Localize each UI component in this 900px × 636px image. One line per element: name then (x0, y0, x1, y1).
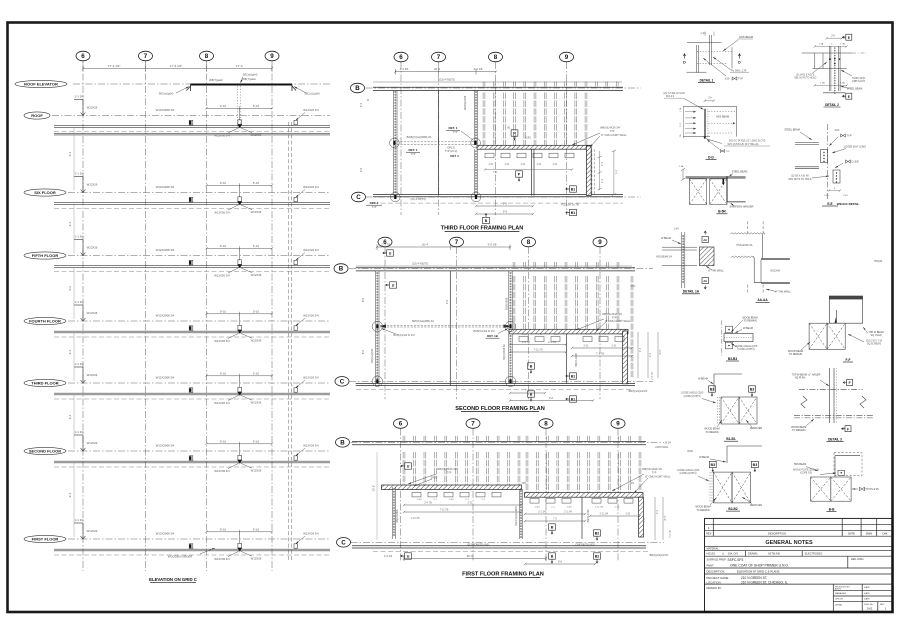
svg-text:B2(X)w(2)06: B2(X)w(2)06 (371, 348, 374, 363)
svg-text:W BEAM: W BEAM (699, 456, 709, 459)
svg-text:DRAWN:: DRAWN: (748, 552, 758, 555)
svg-text:F: F (849, 381, 851, 385)
svg-text:WOODEN GIRDER: WOODEN GIRDER (168, 555, 193, 559)
svg-text:38Cx(t)g/h0: 38Cx(t)g/h0 (159, 92, 174, 96)
svg-text:2'-11: 2'-11 (489, 164, 495, 166)
svg-text:5'-10: 5'-10 (253, 371, 260, 375)
svg-text:B25(X)L3/4`D 1/3: B25(X)L3/4`D 1/3 (394, 333, 415, 337)
svg-text:C: C (341, 540, 346, 547)
svg-text:TYP: TYP (725, 151, 730, 153)
svg-text:FIRST FLOOR: FIRST FLOOR (32, 536, 59, 541)
svg-text:7'-11: 7'-11 (493, 172, 499, 174)
svg-text:ANGLE PLATE (2)X5+3A: ANGLE PLATE (2)X5+3A (793, 469, 819, 472)
svg-text:2'-4: 2'-4 (649, 352, 652, 357)
svg-text:1 3A: 1 3A (840, 82, 845, 85)
svg-text:DET. 1: DET. 1 (448, 126, 457, 130)
svg-text:C: C (340, 379, 345, 386)
svg-text:5'-10: 5'-10 (253, 439, 260, 443)
svg-text:W12X26 3/4: W12X26 3/4 (303, 108, 319, 112)
svg-text:1'-1 3/4: 1'-1 3/4 (74, 518, 84, 522)
svg-text:2'-11 3/4: 2'-11 3/4 (600, 514, 609, 516)
svg-text:STEEL BEAM: STEEL BEAM (784, 128, 800, 131)
svg-text:7'-1 7/8: 7'-1 7/8 (596, 353, 605, 356)
svg-text:SIX FLOOR: SIX FLOOR (34, 190, 56, 195)
svg-text:B: B (355, 85, 360, 92)
svg-text:W12X2068 3/4: W12X2068 3/4 (156, 248, 175, 252)
svg-text:DWG No.: DWG No. (864, 604, 874, 606)
svg-text:CP1: CP1 (630, 482, 635, 485)
svg-text:(3J) 4"X6(75): (3J) 4"X6(75) (439, 77, 455, 81)
svg-text:B2: B2 (595, 554, 600, 558)
svg-text:W12X36 3/4: W12X36 3/4 (214, 557, 230, 561)
svg-text:DET 4: DET 4 (450, 154, 459, 158)
svg-text:THIRD FLOOR FRAMING PLAN: THIRD FLOOR FRAMING PLAN (441, 226, 524, 232)
svg-text:(2) 1/2 B X 7 3A: (2) 1/2 B X 7 3A (866, 339, 883, 342)
svg-text:7'-2: 7'-2 (525, 390, 530, 393)
svg-text:W12X2068 3/4: W12X2068 3/4 (156, 376, 175, 380)
svg-text:20'-4": 20'-4" (467, 554, 474, 558)
svg-text:DETAIL 1: DETAIL 1 (700, 78, 714, 82)
svg-text:3'-0 1/8: 3'-0 1/8 (474, 67, 483, 71)
svg-text:H88(0B: H88(0B (874, 260, 883, 263)
svg-text:1 3/4: 1 3/4 (843, 195, 849, 197)
svg-text:HSS12X06 3A: HSS12X06 3A (736, 244, 752, 247)
svg-text:B25(X)L3/4`D 1/3: B25(X)L3/4`D 1/3 (474, 329, 495, 333)
svg-text:B2(X)2036 3A: B2(X)2036 3A (503, 344, 506, 360)
svg-text:B3: B3 (750, 387, 755, 391)
svg-text:C: C (356, 194, 361, 201)
svg-text:MANAGER: MANAGER (835, 592, 846, 595)
svg-text:W12X2068 3/4: W12X2068 3/4 (156, 532, 175, 536)
svg-text:7: 7 (437, 54, 441, 61)
svg-text:2'-1 3/4: 2'-1 3/4 (538, 512, 546, 514)
svg-text:2'-4: 2'-4 (639, 347, 642, 352)
svg-text:9: 9 (270, 53, 274, 60)
svg-text:TO REMAIN: TO REMAIN (792, 429, 806, 432)
svg-text:REMOVED: REMOVED (750, 504, 762, 507)
svg-text:8'-6: 8'-6 (361, 297, 365, 302)
svg-text:2'-11: 2'-11 (468, 503, 474, 505)
svg-text:SAMPSON HANGER: SAMPSON HANGER (730, 205, 754, 208)
svg-text:ARCH: ARCH (835, 588, 841, 591)
svg-text:B2-B2: B2-B2 (728, 507, 737, 511)
svg-text:AA-AA: AA-AA (757, 298, 768, 302)
svg-text:W12X36 3/4: W12X36 3/4 (214, 133, 230, 137)
svg-text:1'-1 3/4: 1'-1 3/4 (74, 172, 84, 176)
svg-text:W12X26 3/4: W12X26 3/4 (303, 185, 319, 189)
svg-text:8'-4": 8'-4" (659, 349, 662, 354)
svg-text:2'-1 3/4: 2'-1 3/4 (564, 512, 572, 514)
svg-text:DATE: DATE (864, 586, 870, 589)
svg-text:(COPE (2)X5T4): (COPE (2)X5T4) (738, 349, 755, 351)
svg-text:W12X26: W12X26 (87, 441, 98, 445)
svg-text:B1: B1 (571, 187, 576, 191)
svg-text:TYP: TYP (447, 472, 452, 475)
svg-text:STEEL BEAM: STEEL BEAM (732, 171, 748, 174)
svg-text:1-3/4: 1-3/4 (554, 334, 560, 336)
svg-text:W12X26: W12X26 (251, 400, 262, 404)
svg-text:2'A: 2'A (708, 97, 712, 100)
svg-text:W12X26: W12X26 (251, 210, 262, 214)
svg-text:W12X2068 3/4: W12X2068 3/4 (156, 185, 175, 189)
svg-text:B2: B2 (595, 531, 600, 535)
svg-text:1-3/4: 1-3/4 (535, 507, 541, 509)
svg-text:B2(5)(X)va(2068) 3A: B2(5)(X)va(2068) 3A (407, 135, 432, 139)
svg-text:TYP: TYP (411, 153, 416, 156)
svg-text:1-3/4: 1-3/4 (417, 499, 423, 501)
svg-text:F-F: F-F (846, 358, 851, 362)
svg-text:B8(X)L4X26: B8(X)L4X26 (587, 509, 590, 523)
svg-text:3/16: 3/16 (835, 129, 840, 132)
svg-text:E-E: E-E (827, 202, 832, 206)
svg-text:9'-6: 9'-6 (68, 414, 72, 419)
svg-text:LOOSE 3A 8" LONG: LOOSE 3A 8" LONG (844, 146, 866, 149)
svg-text:E: E (848, 95, 850, 99)
svg-text:2'-11: 2'-11 (521, 164, 527, 166)
svg-text:8: 8 (527, 239, 531, 246)
svg-text:2'-11: 2'-11 (611, 345, 617, 348)
svg-text:W12X26: W12X26 (251, 133, 262, 137)
svg-text:ONE COAT OF SHOP PRIMER U.N.O.: ONE COAT OF SHOP PRIMER U.N.O. (730, 564, 789, 568)
svg-text:W BEAM: W BEAM (698, 377, 708, 380)
svg-text:5'-10: 5'-10 (253, 181, 260, 185)
svg-text:W12X26: W12X26 (251, 273, 262, 277)
svg-text:20'-4: 20'-4 (422, 243, 428, 247)
svg-text:W12X36 3/4: W12X36 3/4 (214, 339, 230, 343)
svg-text:7'-11 7/8: 7'-11 7/8 (533, 349, 543, 352)
svg-text:B8(2)(1/4)L3/4`D: B8(2)(1/4)L3/4`D (650, 554, 669, 557)
svg-text:TYP: TYP (738, 77, 743, 81)
svg-text:TO REMAIN: TO REMAIN (743, 320, 757, 323)
svg-text:(3(J)-4"X6(75) (A3): (3(J)-4"X6(75) (A3) (467, 543, 489, 547)
svg-text:LOCATION: LOCATION (707, 580, 721, 584)
svg-text:(COPE 0'S): (COPE 0'S) (800, 473, 812, 475)
svg-text:1-3/4: 1-3/4 (522, 334, 528, 336)
svg-text:U: U (407, 554, 410, 558)
svg-text:W12X26: W12X26 (87, 373, 98, 377)
svg-text:TO REMAIN: TO REMAIN (705, 431, 719, 434)
svg-text:(3J) 4"X6(75): (3J) 4"X6(75) (410, 197, 425, 201)
svg-text:DESCRIPTION: DESCRIPTION (768, 531, 786, 535)
svg-text:2'-11: 2'-11 (626, 514, 632, 516)
svg-text:STEEL BEAM: STEEL BEAM (847, 88, 863, 91)
svg-text:7'-4: 7'-4 (643, 517, 646, 522)
svg-text:TYP NS & FS: TYP NS & FS (864, 488, 879, 491)
svg-text:...M 3/4: ...M 3/4 (663, 443, 671, 445)
svg-text:DETAIL: DETAIL (835, 603, 843, 606)
svg-text:1'-1 3/4: 1'-1 3/4 (74, 95, 84, 99)
svg-text:8" CMU ACMT WALL: 8" CMU ACMT WALL (601, 133, 627, 137)
svg-text:210 N GREEN ST, CHICAGO, IL: 210 N GREEN ST, CHICAGO, IL (741, 580, 788, 584)
svg-text:DET. 1B: DET. 1B (487, 334, 498, 338)
svg-text:U: U (392, 283, 395, 287)
svg-text:TYP: TYP (453, 131, 458, 134)
svg-text:7: 7 (144, 53, 148, 60)
svg-text:7'-11 7/8: 7'-11 7/8 (440, 510, 449, 512)
svg-text:3/16: 3/16 (725, 78, 730, 81)
svg-text:THIRD FLOOR: THIRD FLOOR (31, 380, 58, 385)
svg-text:B: B (339, 266, 344, 273)
svg-text:B1-B1: B1-B1 (726, 437, 735, 441)
svg-text:FOURTH FLOOR: FOURTH FLOOR (29, 318, 61, 323)
svg-text:ELEVATION AT GRID C & PLANS: ELEVATION AT GRID C & PLANS (737, 570, 780, 574)
svg-text:(3)4"X6(75) (A3): (3)4"X6(75) (A3) (576, 543, 595, 547)
svg-text:8" CMU ACMT WALL: 8" CMU ACMT WALL (605, 319, 631, 323)
svg-text:W12X26: W12X26 (87, 183, 98, 187)
svg-text:9'-6: 9'-6 (68, 492, 72, 497)
svg-text:DBL NUTS TO HOLD: DBL NUTS TO HOLD (789, 178, 812, 181)
svg-text:1 3A: 1 3A (679, 107, 682, 112)
svg-text:2'-11: 2'-11 (537, 164, 543, 166)
svg-text:2'-11: 2'-11 (505, 164, 511, 166)
svg-text:B1: B1 (571, 374, 576, 378)
svg-text:8" THK WALL: 8" THK WALL (708, 269, 724, 272)
svg-text:38Cx(t)g/h0: 38Cx(t)g/h0 (243, 72, 258, 76)
svg-text:W8(T)pack: W8(T)pack (209, 78, 223, 82)
svg-text:W12X36 3/4: W12X36 3/4 (214, 469, 230, 473)
svg-text:W/O (2) 5/8 A.B. W 2" BIG+3A: W/O (2) 5/8 A.B. W 2" BIG+3A (727, 143, 758, 146)
svg-text:5'-10: 5'-10 (253, 309, 260, 313)
svg-text:17'-4: 17'-4 (236, 64, 243, 68)
svg-text:W12X26: W12X26 (87, 529, 98, 533)
svg-text:DETAIL 2: DETAIL 2 (825, 103, 839, 107)
svg-text:1'-2 3/4: 1'-2 3/4 (400, 67, 409, 71)
svg-text:SECOND FLOOR FRAMING PLAN: SECOND FLOOR FRAMING PLAN (455, 406, 545, 412)
svg-text:17'-4 1/4": 17'-4 1/4" (170, 64, 183, 68)
svg-text:B3-B3: B3-B3 (728, 357, 737, 361)
svg-text:SURFACE PREP:: SURFACE PREP: (707, 558, 727, 561)
svg-text:W BEAM: W BEAM (743, 327, 753, 330)
svg-text:TYP: TYP (372, 206, 377, 209)
svg-text:CHK: CHK (882, 531, 888, 535)
svg-text:HSS BEAM: HSS BEAM (739, 35, 754, 39)
svg-text:2'-1 3/4: 2'-1 3/4 (548, 341, 557, 344)
svg-text:6: 6 (399, 54, 403, 61)
svg-text:TYP (LN.2): TYP (LN.2) (445, 150, 458, 153)
svg-text:AA: AA (703, 238, 707, 242)
svg-text:DATE: DATE (848, 531, 855, 535)
svg-text:1'-1 3/4: 1'-1 3/4 (74, 362, 84, 366)
svg-text:LOOSE ANGLE (2)X5: LOOSE ANGLE (2)X5 (677, 469, 700, 472)
svg-text:W12X06: W12X06 (770, 270, 780, 273)
svg-text:1-3/4: 1-3/4 (449, 499, 455, 501)
svg-text:1 3/4: 1 3/4 (824, 195, 830, 197)
svg-text:S-01: S-01 (867, 606, 873, 610)
svg-text:TYP: TYP (652, 472, 657, 475)
svg-text:B: B (485, 219, 488, 223)
svg-text:9'-0: 9'-0 (549, 397, 554, 400)
svg-text:W12X2068 3/4: W12X2068 3/4 (156, 444, 175, 448)
svg-text:2'-4: 2'-4 (601, 178, 604, 183)
svg-text:1'-3 3/4: 1'-3 3/4 (384, 555, 393, 558)
svg-text:(3J) 4"X6(75): (3J) 4"X6(75) (412, 262, 428, 266)
svg-text:8: 8 (494, 54, 498, 61)
svg-text:8'-6: 8'-6 (361, 349, 365, 354)
svg-text:GENERAL NOTES: GENERAL NOTES (765, 540, 813, 546)
svg-text:B: B (530, 364, 533, 368)
svg-text:ELECTRODES:: ELECTRODES: (805, 552, 823, 555)
svg-text:7'-3 7/8: 7'-3 7/8 (652, 371, 654, 379)
svg-text:REMOVED: REMOVED (750, 427, 762, 430)
svg-text:8: 8 (205, 53, 209, 60)
svg-text:(COPE (2)X5T4): (COPE (2)X5T4) (684, 396, 701, 398)
svg-text:W/A 2.2: W/A 2.2 (666, 95, 675, 98)
svg-text:W12X26 3/4: W12X26 3/4 (303, 444, 319, 448)
svg-text:ELEVATION ON GRID C: ELEVATION ON GRID C (149, 577, 197, 582)
svg-text:HSS BEAM: HSS BEAM (716, 116, 729, 119)
svg-text:ROOF: ROOF (31, 113, 43, 118)
svg-text:9'-6: 9'-6 (503, 210, 508, 214)
svg-text:DWN: DWN (866, 531, 872, 535)
svg-text:5'-10: 5'-10 (253, 527, 260, 531)
svg-text:W8(X)L4X26 3/4: W8(X)L4X26 3/4 (642, 467, 662, 471)
svg-text:B1: B1 (571, 211, 576, 215)
svg-text:B8(X)X26/B: B8(X)X26/B (396, 509, 399, 523)
svg-text:1'-1 3/4: 1'-1 3/4 (74, 300, 84, 304)
svg-text:2'-4: 2'-4 (601, 161, 604, 166)
svg-text:20'-4: 20'-4 (434, 67, 440, 71)
svg-text:9'-6: 9'-6 (68, 151, 72, 156)
svg-text:9'-6: 9'-6 (68, 221, 72, 226)
svg-text:2'-11: 2'-11 (615, 507, 620, 509)
svg-text:FIFTH FLOOR: FIFTH FLOOR (32, 253, 59, 258)
svg-text:1 3/4: 1 3/4 (673, 229, 679, 231)
svg-text:W12X2068 3/4: W12X2068 3/4 (156, 314, 175, 318)
svg-text:8: 8 (544, 421, 548, 428)
svg-text:W12X26: W12X26 (87, 311, 98, 315)
svg-text:B-5R: B-5R (718, 210, 726, 214)
svg-text:2'-11 3/4: 2'-11 3/4 (595, 507, 604, 509)
svg-text:8'-0: 8'-0 (558, 561, 563, 564)
svg-text:PAINT:: PAINT: (707, 564, 715, 567)
svg-text:7'-4": 7'-4" (616, 169, 619, 174)
svg-text:2'-11: 2'-11 (553, 164, 559, 166)
svg-text:AA: AA (703, 279, 707, 283)
svg-text:3C2D: 3C2D (687, 451, 693, 453)
svg-text:(2) 3/4`D X.A.B. &: (2) 3/4`D X.A.B. & (796, 73, 815, 76)
svg-text:CHK BY: CHK BY (835, 599, 844, 601)
svg-text:B8(2)(1/4)L3/4`D: B8(2)(1/4)L3/4`D (629, 390, 648, 393)
svg-text:B3: B3 (753, 463, 758, 467)
svg-text:F: F (847, 427, 849, 431)
svg-text:DBL NUTS TO HOLD: DBL NUTS TO HOLD (794, 78, 816, 80)
svg-text:8" CMU ACMT WALL: 8" CMU ACMT WALL (645, 475, 671, 479)
svg-text:9'-10: 9'-10 (220, 104, 227, 108)
svg-text:W8(X)L4X26 3/4: W8(X)L4X26 3/4 (602, 312, 622, 316)
svg-text:7: 7 (455, 239, 459, 246)
svg-text:1-3/4: 1-3/4 (567, 507, 573, 509)
svg-text:SQ. PLAN: SQ. PLAN (870, 334, 881, 337)
svg-text:(2)B5 3A/4`D: (2)B5 3A/4`D (852, 80, 866, 83)
svg-text:W12X36 3/4: W12X36 3/4 (214, 210, 230, 214)
svg-text:B-B: B-B (829, 508, 835, 512)
svg-text:ASTM A36: ASTM A36 (768, 552, 781, 555)
svg-text:TO REMAIN: TO REMAIN (696, 509, 710, 512)
svg-text:W12X36 3/4: W12X36 3/4 (214, 273, 230, 277)
svg-text:W12X26 3/4: W12X26 3/4 (303, 376, 319, 380)
svg-text:1'-10 7/8: 1'-10 7/8 (411, 518, 421, 520)
svg-text:HOLES:: HOLES: (707, 552, 716, 555)
svg-text:W8(T)pack: W8(T)pack (242, 77, 256, 81)
svg-text:W BEAM: W BEAM (661, 237, 671, 240)
svg-text:6: 6 (81, 53, 85, 60)
svg-text:9'-10: 9'-10 (220, 181, 227, 185)
svg-text:5'-0: 5'-0 (503, 202, 508, 206)
svg-text:LOOSE ANGLE (2)X5: LOOSE ANGLE (2)X5 (681, 392, 704, 395)
svg-text:1'-1 3/4: 1'-1 3/4 (74, 235, 84, 239)
svg-text:2'A: 2'A (831, 35, 835, 38)
svg-text:W12X26: W12X26 (87, 246, 98, 250)
svg-text:MATERIAL:: MATERIAL: (707, 548, 720, 551)
svg-text:9: 9 (565, 54, 569, 61)
svg-text:2X0 OC TA P&S 1/2" LONG SLOTS: 2X0 OC TA P&S 1/2" LONG SLOTS (729, 140, 766, 143)
svg-text:LOOSE ANGLE (2)X5: LOOSE ANGLE (2)X5 (735, 345, 758, 348)
svg-text:U: U (407, 464, 410, 468)
svg-text:9'-3: 9'-3 (445, 299, 449, 304)
svg-text:WELDC DETAIL: WELDC DETAIL (837, 202, 860, 206)
svg-text:B3: B3 (710, 463, 715, 467)
svg-text:30'-6": 30'-6" (372, 485, 376, 492)
svg-text:B2(X)X306: B2(X)X306 (506, 297, 509, 310)
svg-text:W12X26: W12X26 (251, 338, 262, 342)
svg-text:1 3A: 1 3A (819, 43, 824, 46)
svg-text:DATE: DATE (864, 592, 870, 595)
svg-text:REV: REV (706, 531, 712, 535)
svg-text:1 3A: 1 3A (820, 82, 825, 85)
svg-text:9'-6: 9'-6 (359, 167, 363, 172)
svg-text:7: 7 (471, 421, 475, 428)
svg-text:REV: REV (880, 604, 885, 606)
svg-text:8" THK WALL: 8" THK WALL (775, 291, 791, 294)
svg-text:D-D: D-D (708, 155, 714, 159)
svg-text:3'-0 1/8: 3'-0 1/8 (488, 243, 497, 247)
svg-text:W12X2068 3/4: W12X2068 3/4 (156, 108, 175, 112)
svg-text:6: 6 (399, 421, 403, 428)
svg-text:U: U (367, 98, 369, 102)
svg-text:B: B (551, 554, 554, 558)
svg-text:9: 9 (598, 239, 602, 246)
svg-text:FIRST FLOOR FRAMING PLAN: FIRST FLOOR FRAMING PLAN (462, 572, 544, 578)
svg-text:5'-10: 5'-10 (253, 244, 260, 248)
svg-text:W8(X)L4X26 3/4: W8(X)L4X26 3/4 (437, 467, 457, 471)
svg-text:TYP: TYP (846, 134, 851, 138)
svg-text:DETAIL 3: DETAIL 3 (828, 437, 842, 441)
svg-text:9'-3: 9'-3 (359, 102, 363, 107)
svg-text:9'-6: 9'-6 (68, 349, 72, 354)
svg-text:1 3A: 1 3A (840, 43, 845, 46)
svg-text:REF. DWG: REF. DWG (851, 557, 864, 561)
svg-text:DATE: DATE (864, 598, 870, 601)
svg-text:C-3 7/8: C-3 7/8 (382, 243, 391, 247)
svg-text:9'-10: 9'-10 (220, 244, 227, 248)
svg-text:B: B (340, 440, 345, 447)
svg-text:E: E (848, 36, 850, 40)
svg-text:1 3A: 1 3A (679, 165, 684, 168)
svg-text:9: 9 (616, 421, 620, 428)
svg-text:TAND[ 3A/W: TAND[ 3A/W (852, 77, 866, 80)
svg-text:W12X26 3/4: W12X26 3/4 (303, 314, 319, 318)
svg-text:DIA. O/S: DIA. O/S (728, 552, 738, 555)
svg-text:9'-10: 9'-10 (220, 371, 227, 375)
svg-text:W8(X)L4X26 3/4: W8(X)L4X26 3/4 (600, 126, 620, 130)
svg-text:HSS BEAM: HSS BEAM (794, 463, 806, 466)
svg-text:B: B (551, 525, 554, 529)
svg-text:CP1: CP1 (631, 285, 636, 288)
svg-text:W12X36 3/4: W12X36 3/4 (214, 401, 230, 405)
svg-text:SSPC-SP3: SSPC-SP3 (728, 558, 744, 562)
svg-text:W12X26: W12X26 (251, 468, 262, 472)
svg-text:B25(X)va(20B) 3A: B25(X)va(20B) 3A (412, 319, 434, 323)
